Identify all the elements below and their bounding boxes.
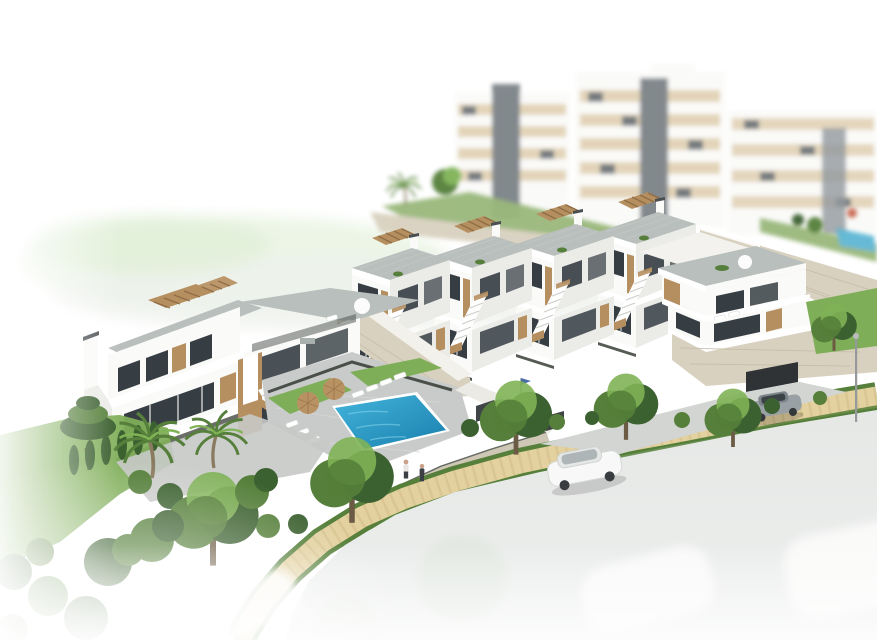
background-umbrella-icon: [847, 208, 857, 218]
roof-parasol-icon: [738, 255, 752, 269]
pedestrian: [403, 460, 408, 479]
right-villa: [640, 232, 877, 392]
render-image: [0, 0, 877, 640]
pool-umbrella: [323, 378, 345, 400]
pedestrian: [420, 464, 425, 481]
roof-parasol-icon: [354, 298, 370, 314]
pool-umbrella: [297, 392, 319, 414]
scene-svg: [0, 0, 877, 640]
